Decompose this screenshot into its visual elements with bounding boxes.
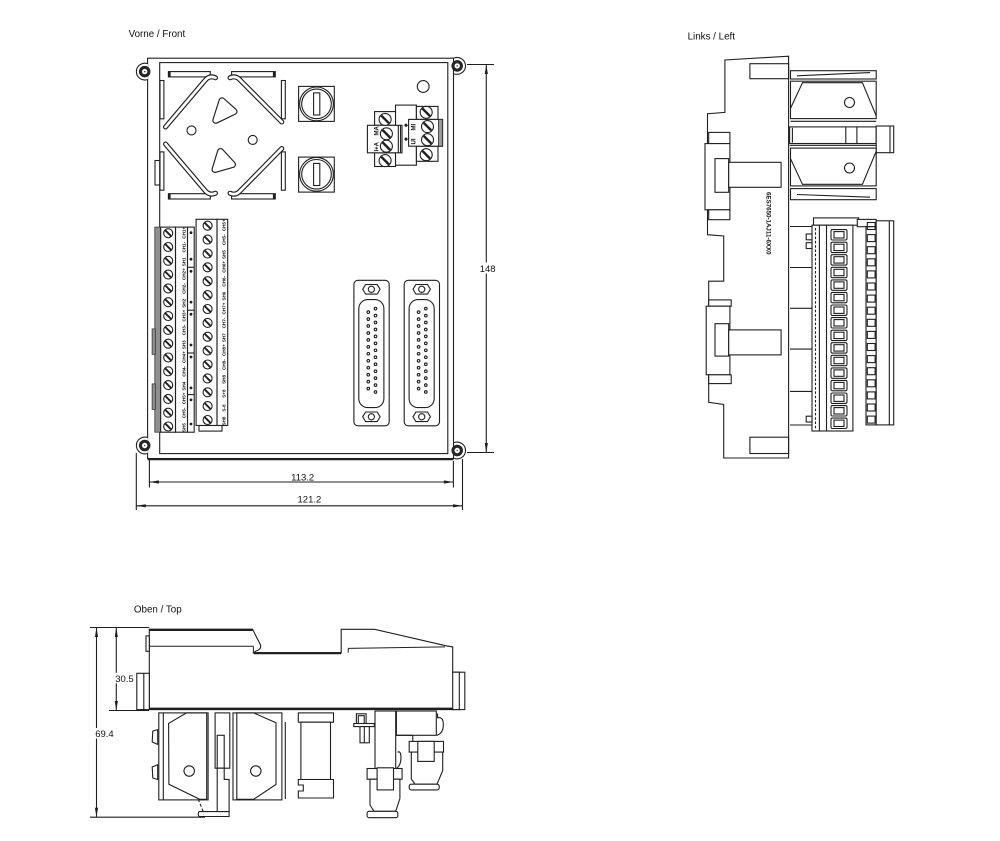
svg-text:SH3: SH3 (181, 340, 186, 349)
svg-text:69.4: 69.4 (95, 729, 114, 740)
svg-text:30.5: 30.5 (115, 674, 134, 685)
svg-text:CH3-: CH3- (181, 324, 186, 335)
svg-text:148: 148 (480, 264, 496, 275)
svg-text:CH5-: CH5- (181, 407, 186, 418)
svg-text:CH7+: CH7+ (222, 302, 227, 314)
svg-text:MI: MI (412, 124, 418, 131)
svg-text:Vorne / Front: Vorne / Front (129, 29, 186, 40)
svg-text:MA: MA (375, 126, 381, 136)
svg-text:SH1: SH1 (181, 257, 186, 266)
svg-text:CH5+: CH5+ (181, 392, 186, 404)
svg-text:CH5-: CH5- (222, 234, 227, 245)
svg-text:I+A: I+A (375, 141, 381, 151)
svg-text:CH1+: CH1+ (181, 227, 186, 239)
svg-text:113.2: 113.2 (291, 473, 314, 484)
svg-text:CH8+: CH8+ (222, 344, 227, 356)
svg-text:CH3+: CH3+ (181, 309, 186, 321)
svg-text:SH4: SH4 (181, 381, 186, 390)
svg-text:UI: UI (412, 138, 418, 144)
svg-text:121.2: 121.2 (298, 495, 322, 506)
svg-text:6ES7650-1AJ11-6XX0: 6ES7650-1AJ11-6XX0 (765, 192, 772, 255)
svg-text:SH8: SH8 (222, 416, 227, 425)
svg-text:CH7-: CH7- (222, 317, 227, 328)
svg-text:CH6-: CH6- (222, 276, 227, 287)
svg-text:SH7: SH7 (222, 333, 227, 342)
svg-text:CH6+: CH6+ (222, 261, 227, 273)
svg-text:CH1-: CH1- (181, 241, 186, 252)
svg-text:Oben / Top: Oben / Top (134, 604, 182, 615)
svg-text:SH5: SH5 (222, 250, 227, 259)
svg-text:Links / Left: Links / Left (688, 32, 736, 43)
svg-text:CH4-: CH4- (181, 366, 186, 377)
svg-text:CH4+: CH4+ (181, 351, 186, 363)
svg-text:SH6: SH6 (222, 291, 227, 300)
svg-text:CH5+: CH5+ (222, 219, 227, 231)
svg-text:CH8-: CH8- (222, 359, 227, 370)
svg-text:SH5: SH5 (181, 423, 186, 432)
svg-text:SH8: SH8 (222, 375, 227, 384)
svg-text:S+8: S+8 (222, 389, 227, 398)
svg-text:CH2-: CH2- (181, 283, 186, 294)
svg-text:S-8: S-8 (222, 404, 227, 412)
svg-text:CH2+: CH2+ (181, 268, 186, 280)
svg-text:SH2: SH2 (181, 298, 186, 307)
